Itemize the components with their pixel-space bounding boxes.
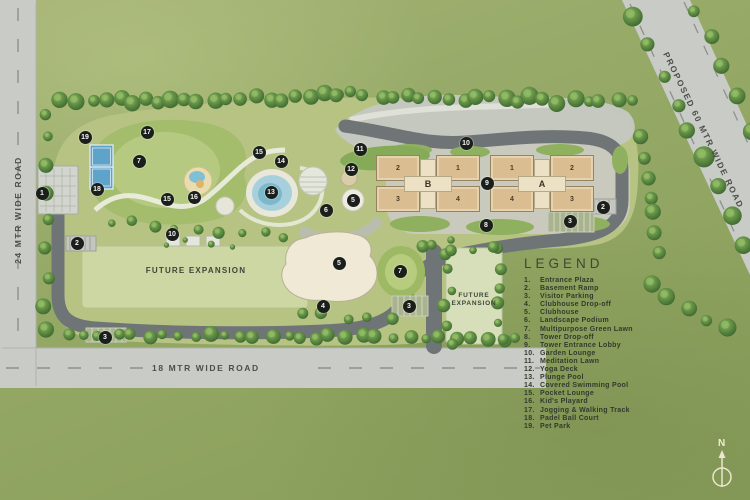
legend-item: 6.Landscape Podium [524, 317, 739, 325]
legend-item: 16.Kid's Playard [524, 398, 739, 406]
tower-letter-A: A [539, 179, 546, 189]
legend-item: 19.Pet Park [524, 423, 739, 431]
legend: LEGEND 1.Entrance Plaza2.Basement Ramp3.… [524, 256, 739, 431]
future-expansion-small-label: FUTURE EXPANSION [446, 292, 502, 308]
tower-letter-B: B [425, 179, 432, 189]
legend-item: 11.Meditation Lawn [524, 358, 739, 366]
plan-marker-18: 18 [91, 183, 104, 196]
padel-ball-court [90, 145, 113, 189]
legend-item: 9.Tower Entrance Lobby [524, 342, 739, 350]
legend-item: 4.Clubhouse Drop-off [524, 301, 739, 309]
legend-item: 15.Pocket Lounge [524, 390, 739, 398]
legend-item: 13.Plunge Pool [524, 374, 739, 382]
plan-marker-10: 10 [166, 228, 179, 241]
plan-marker-7: 7 [133, 155, 146, 168]
plan-marker-17: 17 [141, 126, 154, 139]
legend-item: 5.Clubhouse [524, 309, 739, 317]
compass-north-label: N [718, 438, 725, 449]
road-label-18mtr: 18 MTR WIDE ROAD [152, 363, 260, 373]
plan-marker-4: 4 [317, 300, 330, 313]
future-expansion-large-label: FUTURE EXPANSION [96, 266, 296, 275]
plan-marker-15: 15 [161, 193, 174, 206]
legend-item: 8.Tower Drop-off [524, 334, 739, 342]
plan-marker-10: 10 [460, 137, 473, 150]
plan-marker-19: 19 [79, 131, 92, 144]
plan-marker-3: 3 [99, 331, 112, 344]
plan-marker-7: 7 [394, 265, 407, 278]
legend-item: 12.Yoga Deck [524, 366, 739, 374]
clubhouse [282, 232, 377, 302]
plan-marker-11: 11 [354, 143, 367, 156]
plan-marker-9: 9 [481, 177, 494, 190]
legend-item: 1.Entrance Plaza [524, 277, 739, 285]
plan-marker-5: 5 [347, 194, 360, 207]
plan-marker-14: 14 [275, 155, 288, 168]
road-label-24mtr: 24 MTR WIDE ROAD [13, 145, 23, 275]
legend-item: 17.Jogging & Walking Track [524, 407, 739, 415]
plan-marker-6: 6 [320, 204, 333, 217]
plan-marker-2: 2 [71, 237, 84, 250]
legend-rows: 1.Entrance Plaza2.Basement Ramp3.Visitor… [524, 277, 739, 431]
compass-icon [713, 450, 731, 487]
legend-item: 10.Garden Lounge [524, 350, 739, 358]
site-master-plan: 24 MTR WIDE ROAD 18 MTR WIDE ROAD PROPOS… [0, 0, 750, 500]
future-expansion-large-plot [82, 246, 308, 308]
plan-marker-2: 2 [597, 201, 610, 214]
plan-marker-12: 12 [345, 163, 358, 176]
plan-marker-5: 5 [333, 257, 346, 270]
legend-item: 18.Padel Ball Court [524, 415, 739, 423]
legend-item: 14.Covered Swimming Pool [524, 382, 739, 390]
covered-swimming-pool [299, 167, 327, 195]
legend-item: 7.Multipurpose Green Lawn [524, 326, 739, 334]
plan-marker-13: 13 [265, 186, 278, 199]
kids-playard [184, 167, 212, 195]
legend-title: LEGEND [524, 256, 739, 271]
plan-marker-8: 8 [480, 219, 493, 232]
plan-marker-15: 15 [253, 146, 266, 159]
plan-marker-3: 3 [564, 215, 577, 228]
legend-item: 3.Visitor Parking [524, 293, 739, 301]
legend-item: 2.Basement Ramp [524, 285, 739, 293]
plan-marker-3: 3 [403, 300, 416, 313]
plan-marker-1: 1 [36, 187, 49, 200]
plan-marker-16: 16 [188, 191, 201, 204]
